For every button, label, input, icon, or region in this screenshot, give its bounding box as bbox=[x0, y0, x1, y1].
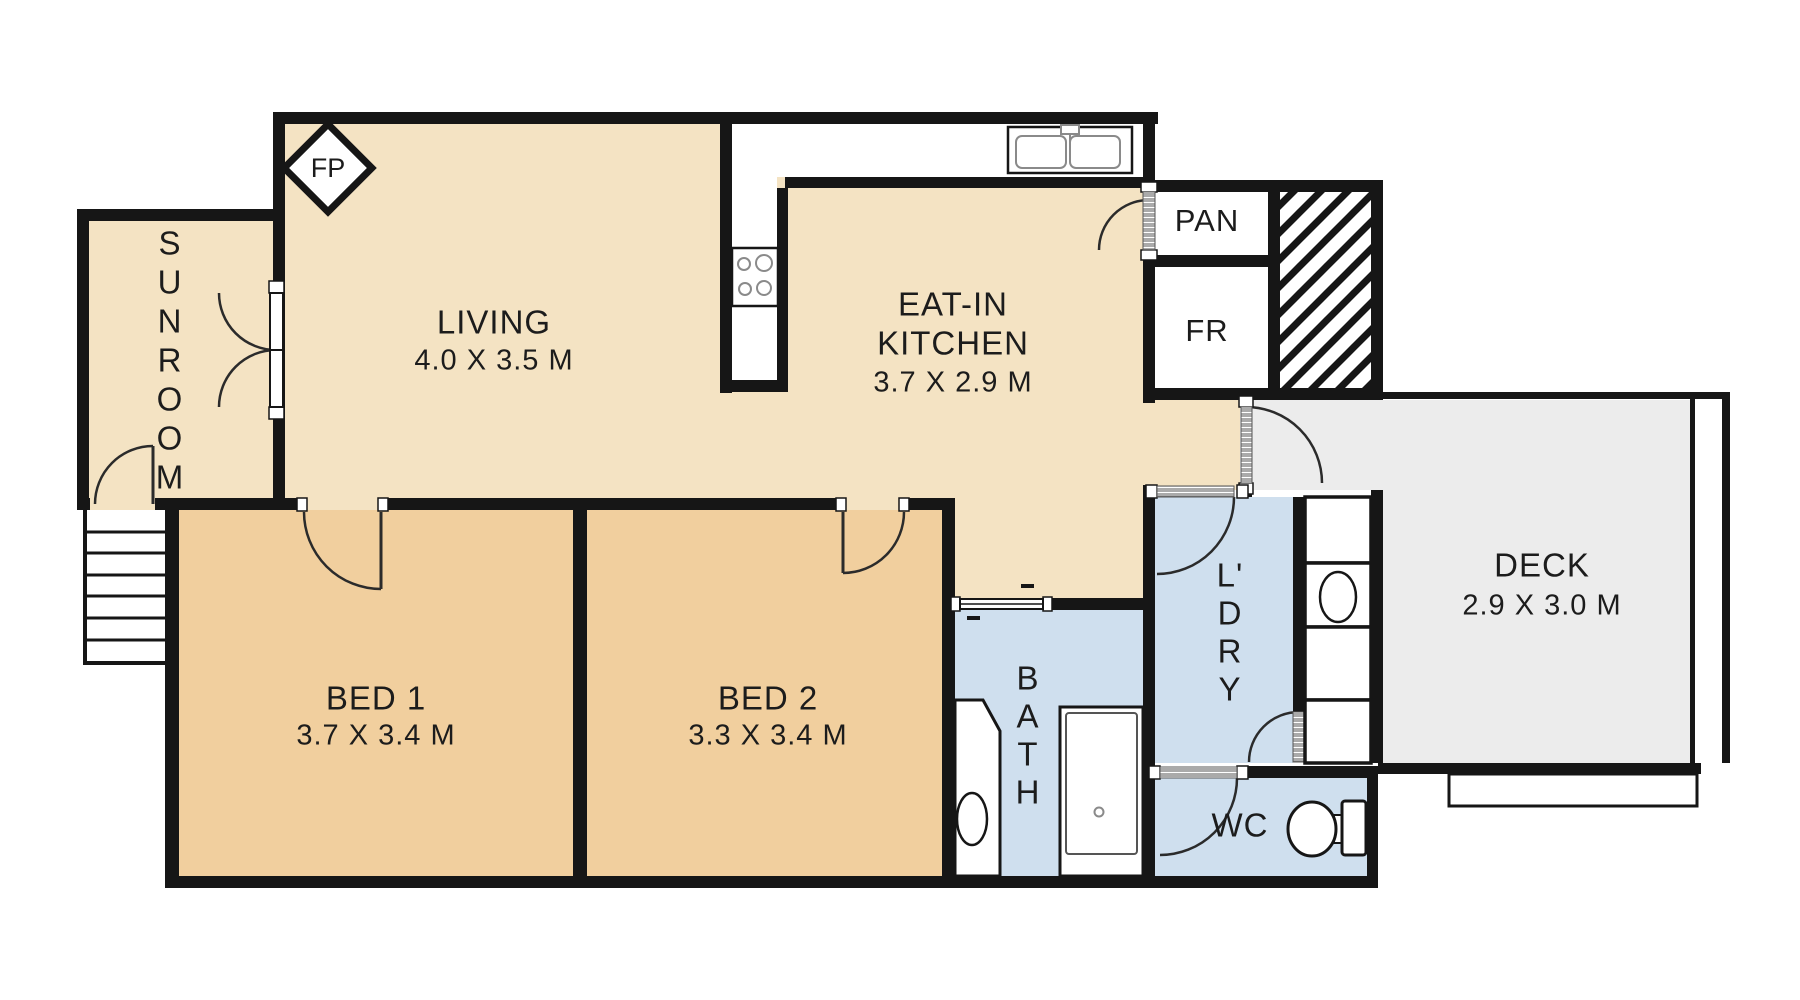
wc-label: WC bbox=[1212, 807, 1269, 844]
sunroom-label: S U N R O O M bbox=[156, 225, 185, 496]
bedrooms-floor bbox=[179, 510, 942, 876]
vanity-basin-icon bbox=[955, 700, 1000, 876]
jamb bbox=[269, 407, 284, 419]
window-tick bbox=[1021, 584, 1034, 588]
hatched-void-icon bbox=[1280, 192, 1371, 388]
jamb bbox=[1237, 485, 1248, 498]
jamb bbox=[836, 498, 846, 511]
stairs-icon bbox=[83, 510, 179, 665]
laundry-letter: Y bbox=[1218, 671, 1241, 708]
bath-label: B A T H bbox=[1016, 660, 1041, 811]
jamb bbox=[1237, 766, 1248, 779]
sunroom-letter: O bbox=[157, 420, 184, 457]
pantry-label: PAN bbox=[1175, 203, 1239, 238]
kitchen-label-line2: KITCHEN bbox=[877, 325, 1029, 362]
wall-bed2-bath bbox=[942, 510, 955, 888]
wall-seg bbox=[902, 498, 955, 510]
bed2-dims: 3.3 X 3.4 M bbox=[688, 720, 847, 752]
wall-wet-left bbox=[1143, 485, 1155, 876]
deck-inner-edge bbox=[1690, 399, 1695, 763]
wall-bench-cap bbox=[720, 380, 788, 392]
wc-door-leaf bbox=[1160, 767, 1237, 778]
wall-bed1-bed2 bbox=[573, 510, 587, 888]
jamb bbox=[378, 498, 388, 511]
hall-to-deck-floor bbox=[1143, 400, 1240, 490]
wall-bottom-main bbox=[165, 876, 1378, 888]
stove-burners-icon bbox=[732, 248, 778, 306]
bath-letter: T bbox=[1017, 736, 1038, 773]
deck-bottom-wall bbox=[1378, 763, 1701, 774]
stairs-left-edge bbox=[83, 510, 87, 665]
wall-hatch-right bbox=[1371, 180, 1383, 400]
wall-bed1-left bbox=[165, 510, 179, 888]
sunroom-letter: N bbox=[158, 303, 183, 340]
wall-kitchen-inner-top bbox=[785, 177, 1143, 188]
jamb bbox=[899, 498, 909, 511]
laundry-side-door-leaf bbox=[1293, 712, 1305, 762]
jamb bbox=[951, 597, 960, 611]
kitchen-label-line1: EAT-IN bbox=[898, 286, 1008, 323]
bath-letter: H bbox=[1016, 774, 1041, 811]
deck-step bbox=[1449, 774, 1697, 806]
laundry-tub-icon bbox=[1305, 497, 1371, 763]
bath-letter: A bbox=[1016, 698, 1039, 735]
window-tick bbox=[967, 616, 980, 620]
french-door-lower-leaf bbox=[270, 350, 283, 407]
wall-pantry-top bbox=[1143, 180, 1383, 192]
sunroom-letter: O bbox=[157, 381, 184, 418]
bed2-label: BED 2 bbox=[718, 680, 818, 717]
jamb bbox=[1043, 597, 1052, 611]
wall-pan-fr-divider bbox=[1155, 255, 1268, 267]
wall-deck-left bbox=[1371, 490, 1383, 763]
fridge-label: FR bbox=[1185, 313, 1228, 348]
wall-seg bbox=[1237, 766, 1378, 778]
double-sink-icon bbox=[1008, 125, 1132, 173]
french-door-upper-leaf bbox=[270, 293, 283, 350]
jamb bbox=[1141, 182, 1157, 192]
deck-top-edge bbox=[1371, 392, 1730, 399]
wall-fr-bottom bbox=[1143, 388, 1383, 400]
laundry-letter: L' bbox=[1217, 557, 1244, 594]
pantry-door-leaf bbox=[1143, 192, 1155, 250]
wall-laundry-right bbox=[1293, 497, 1305, 712]
deck-label: DECK bbox=[1494, 547, 1590, 584]
jamb bbox=[297, 498, 307, 511]
jamb bbox=[1239, 396, 1253, 407]
wall-living-right bbox=[720, 112, 732, 393]
bathtub-icon bbox=[1060, 707, 1143, 876]
wall-wc-right bbox=[1367, 766, 1378, 888]
toilet-icon bbox=[1288, 801, 1366, 856]
deck-right-wall bbox=[1722, 392, 1730, 763]
bed1-label: BED 1 bbox=[326, 680, 426, 717]
wall-seg bbox=[155, 498, 306, 510]
bath-letter: B bbox=[1016, 660, 1039, 697]
sunroom-letter: M bbox=[156, 459, 185, 496]
floor-plan-page: S U N R O O M FP LIVING 4.0 X 3.5 M EAT-… bbox=[0, 0, 1800, 1000]
wall-top-main bbox=[273, 112, 1158, 124]
wall-seg bbox=[77, 498, 90, 510]
jamb bbox=[1141, 250, 1157, 260]
jamb bbox=[1146, 485, 1157, 498]
deck-door-leaf bbox=[1241, 407, 1252, 483]
wall-seg bbox=[383, 498, 841, 510]
laundry-door-leaf bbox=[1157, 486, 1234, 497]
sunroom-letter: R bbox=[158, 342, 183, 379]
hall-before-bath-floor bbox=[955, 498, 1143, 610]
wall-pan-fr-right bbox=[1268, 180, 1280, 400]
sunroom-letter: U bbox=[158, 264, 183, 301]
laundry-letter: R bbox=[1218, 633, 1243, 670]
living-dims: 4.0 X 3.5 M bbox=[414, 345, 573, 377]
fireplace-label: FP bbox=[311, 153, 346, 183]
jamb bbox=[1149, 766, 1160, 779]
wall-sunroom-left bbox=[77, 209, 89, 510]
laundry-letter: D bbox=[1218, 595, 1243, 632]
wall-kitchen-right bbox=[1143, 250, 1155, 403]
laundry-label: L' D R Y bbox=[1217, 557, 1244, 708]
jamb bbox=[269, 281, 284, 293]
floor-plan-canvas: S U N R O O M FP LIVING 4.0 X 3.5 M EAT-… bbox=[0, 0, 1800, 1000]
stairs-bottom-edge bbox=[83, 661, 179, 665]
bed1-dims: 3.7 X 3.4 M bbox=[296, 720, 455, 752]
kitchen-dims: 3.7 X 2.9 M bbox=[873, 367, 1032, 399]
wall-sunroom-top bbox=[77, 209, 285, 221]
sunroom-letter: S bbox=[158, 225, 181, 262]
deck-dims: 2.9 X 3.0 M bbox=[1462, 590, 1621, 622]
living-label: LIVING bbox=[437, 304, 551, 341]
